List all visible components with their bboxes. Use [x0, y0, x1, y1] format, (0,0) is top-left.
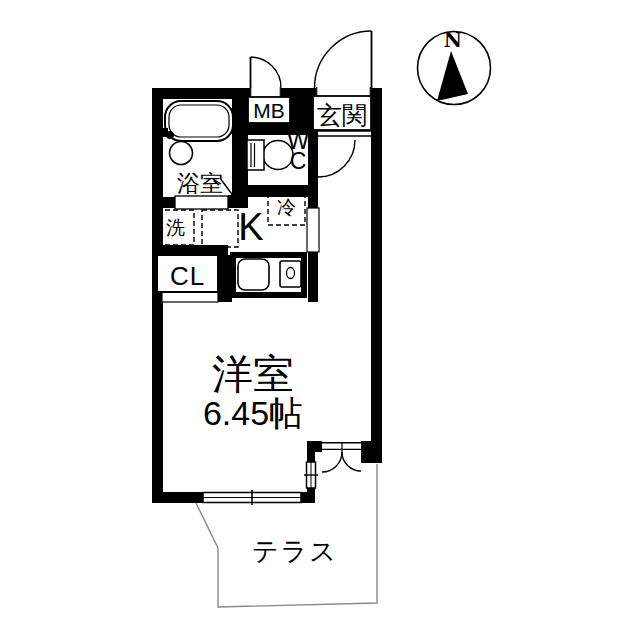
utility-space [202, 210, 238, 247]
terrace-label: テラス [252, 534, 336, 569]
opening-closet [162, 292, 218, 302]
terrace-door-arc-left [322, 452, 342, 472]
wall-notch-top-right [361, 441, 382, 463]
terrace-door-arc-right [342, 452, 361, 471]
wall-cl-corner [218, 290, 232, 302]
refrigerator-label: 冷 [268, 195, 305, 221]
bathroom-label: 浴室 [168, 168, 232, 199]
wall-top-left [152, 88, 251, 99]
meter-box-label: MB [248, 99, 290, 123]
floorplan-canvas: MB 玄関 WC 浴室 洗 冷 K CL 洋室 6.45帖 テラス N [0, 0, 640, 640]
wall-corridor-lower [308, 252, 318, 302]
kitchen-label: K [235, 206, 267, 249]
windows [203, 462, 318, 505]
opening-kitchen [307, 208, 319, 252]
wall-wc-east [308, 128, 318, 197]
hall-door-arc [318, 140, 355, 177]
toilet-label: WC [287, 131, 309, 171]
wall-notch-top-left [307, 441, 322, 452]
entrance-door-arc [315, 31, 372, 88]
entrance-label: 玄関 [313, 99, 371, 132]
laundry-label: 洗 [157, 215, 194, 241]
wash-basin [170, 142, 193, 165]
wall-left [152, 88, 163, 503]
stove [280, 261, 301, 287]
bathtub-faucet-knob [166, 131, 174, 139]
closet-label: CL [157, 261, 218, 292]
wall-corridor-upper [308, 197, 318, 208]
room-size-label: 6.45帖 [163, 391, 343, 437]
north-label: N [441, 28, 465, 52]
kitchen-sink [238, 259, 269, 290]
wall-right [371, 88, 382, 463]
toilet-tank [247, 140, 264, 170]
wall-laundry-cl [152, 245, 228, 255]
mb-door-arc [251, 57, 282, 88]
